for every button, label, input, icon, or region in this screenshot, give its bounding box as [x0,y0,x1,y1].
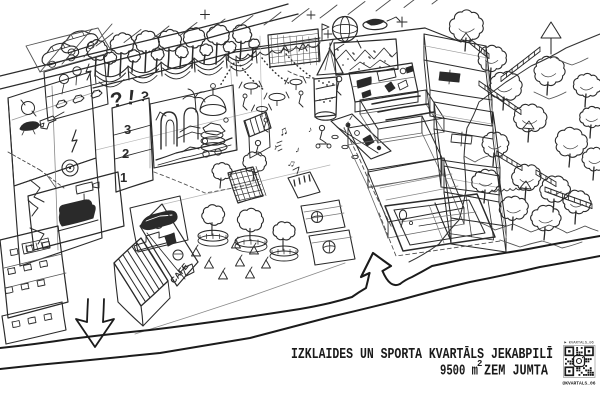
svg-text:♪: ♪ [308,125,312,134]
svg-text:2: 2 [122,146,129,161]
svg-text:9500 m: 9500 m [440,364,478,380]
svg-text:► KVARTALS_06: ► KVARTALS_06 [564,341,594,346]
svg-text:2: 2 [477,359,482,369]
svg-text:3: 3 [124,122,131,137]
svg-text:ZEM JUMTA: ZEM JUMTA [484,364,548,380]
svg-text:@KVARTALS_06: @KVARTALS_06 [562,381,595,387]
svg-text:1: 1 [120,170,127,185]
svg-text:IZKLAIDES UN SPORTA KVARTĀLS J: IZKLAIDES UN SPORTA KVARTĀLS JEKABPILĪ [291,345,553,363]
